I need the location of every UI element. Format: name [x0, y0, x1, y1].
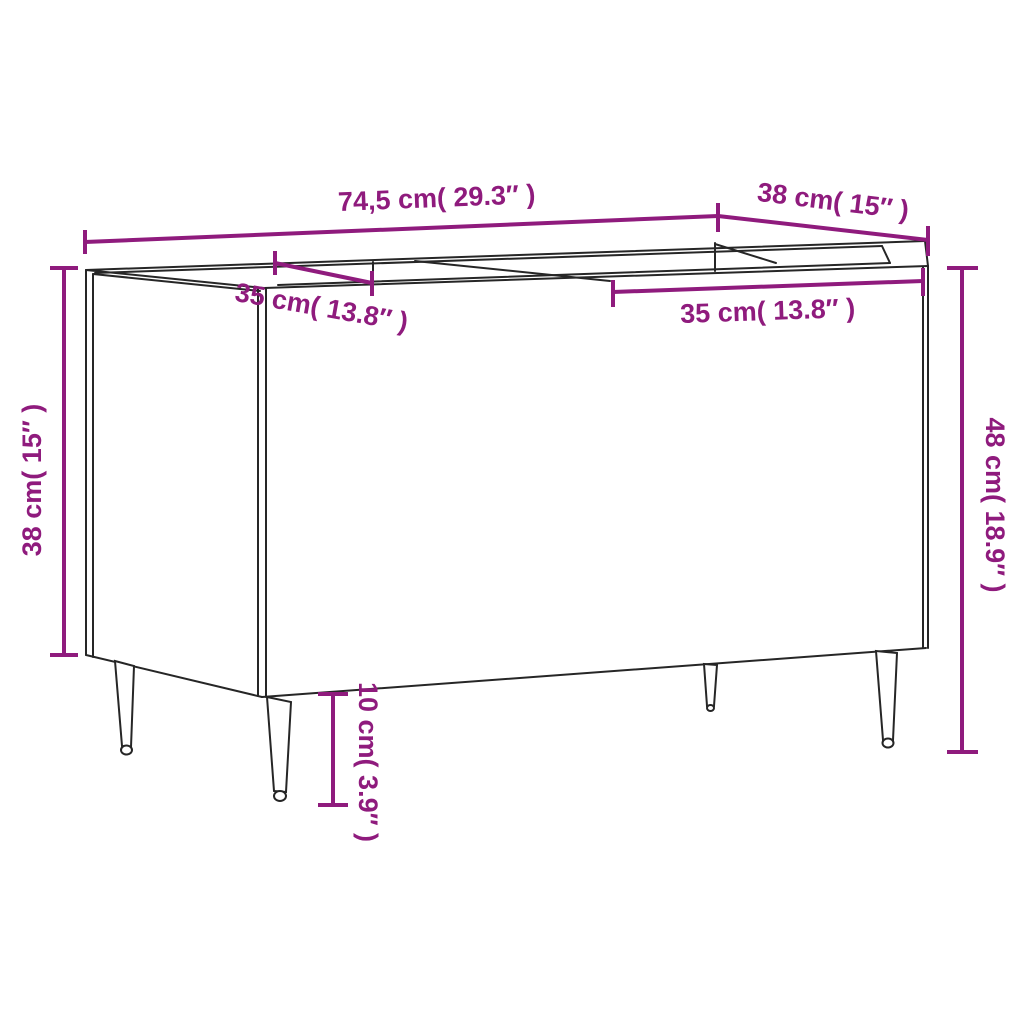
dim-leg-height-label: 10 cm( 3.9″ )	[353, 682, 383, 842]
dim-right-height: 48 cm( 18.9″ )	[947, 268, 1010, 752]
leg-back-left	[115, 661, 134, 747]
dim-compartment-right: 35 cm( 13.8″ )	[613, 268, 923, 329]
dim-left-height: 38 cm( 15″ )	[17, 268, 78, 655]
left-compartment-inner-wall-edge	[415, 261, 610, 281]
cabinet-front-panel	[262, 266, 928, 697]
leg-front-left-foot	[274, 791, 286, 801]
leg-back-right	[704, 664, 717, 706]
dim-top-width-label: 74,5 cm( 29.3″ )	[337, 179, 536, 217]
dim-right-height-label: 48 cm( 18.9″ )	[980, 417, 1010, 592]
product-dimension-diagram: 74,5 cm( 29.3″ ) 38 cm( 15″ ) 38 cm( 15″…	[0, 0, 1024, 1024]
dim-top-depth-label: 38 cm( 15″ )	[756, 177, 911, 225]
dim-left-height-label: 38 cm( 15″ )	[17, 404, 47, 557]
cabinet-drawing	[86, 241, 928, 801]
cabinet-legs	[115, 651, 897, 801]
leg-front-left	[267, 697, 291, 792]
cabinet-left-panel	[86, 270, 266, 697]
leg-back-right-foot	[707, 705, 714, 711]
diagram-canvas: 74,5 cm( 29.3″ ) 38 cm( 15″ ) 38 cm( 15″…	[0, 0, 1024, 1024]
cabinet-top-openings	[86, 241, 928, 285]
dim-leg-height: 10 cm( 3.9″ )	[318, 682, 383, 842]
leg-back-left-foot	[121, 746, 132, 755]
dim-top-width: 74,5 cm( 29.3″ )	[85, 179, 718, 254]
leg-front-right-foot	[883, 739, 894, 748]
dim-compartment-right-label: 35 cm( 13.8″ )	[680, 293, 856, 329]
leg-front-right	[876, 651, 897, 740]
